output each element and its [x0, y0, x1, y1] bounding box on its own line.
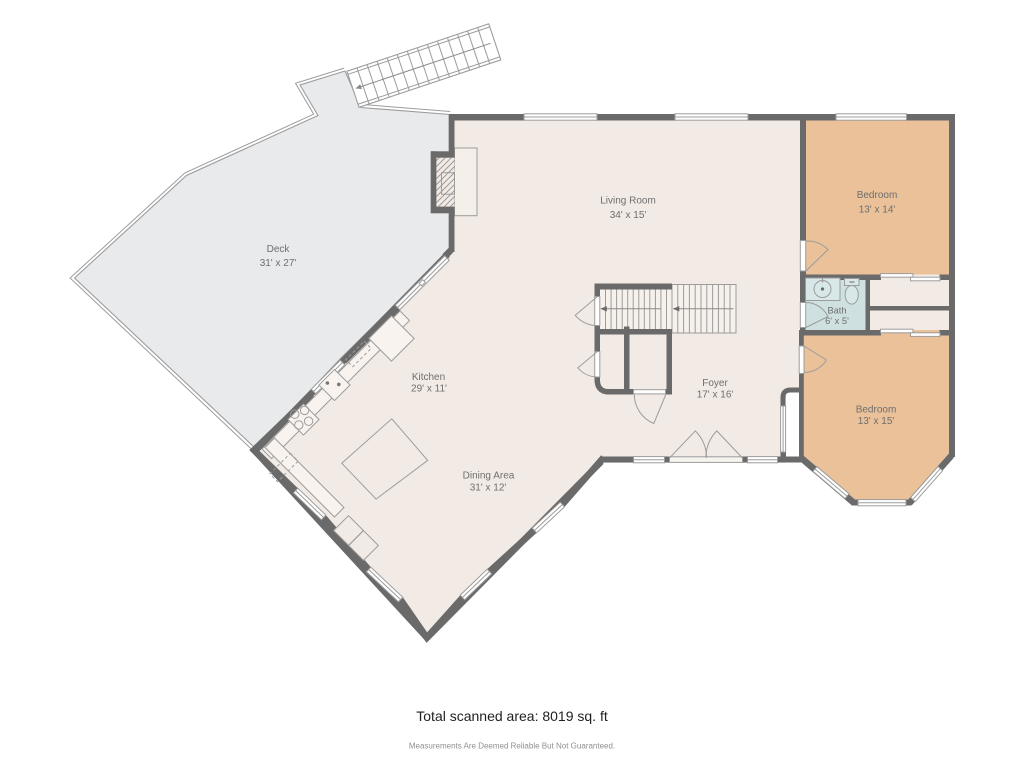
svg-text:Measurements Are Deemed Reliab: Measurements Are Deemed Reliable But Not…	[409, 742, 615, 751]
svg-text:Bedroom: Bedroom	[857, 190, 898, 201]
svg-text:13' x 15': 13' x 15'	[858, 416, 895, 427]
svg-text:Bath: Bath	[827, 306, 846, 316]
svg-text:Kitchen: Kitchen	[412, 372, 445, 383]
svg-text:31' x 12': 31' x 12'	[470, 483, 507, 494]
svg-text:Living Room: Living Room	[600, 196, 656, 207]
svg-text:17' x 16': 17' x 16'	[697, 390, 734, 401]
svg-text:Dining Area: Dining Area	[463, 471, 515, 482]
svg-text:6' x 5': 6' x 5'	[825, 316, 849, 326]
svg-text:Bedroom: Bedroom	[856, 405, 897, 416]
svg-text:13' x 14': 13' x 14'	[859, 205, 896, 216]
svg-text:Foyer: Foyer	[702, 378, 728, 389]
svg-text:Deck: Deck	[267, 244, 291, 255]
svg-text:29' x 11': 29' x 11'	[411, 384, 447, 395]
svg-text:31' x 27': 31' x 27'	[260, 258, 297, 269]
svg-text:34' x 15': 34' x 15'	[610, 210, 647, 221]
svg-text:Total scanned area: 8019 sq. f: Total scanned area: 8019 sq. ft	[416, 708, 608, 724]
